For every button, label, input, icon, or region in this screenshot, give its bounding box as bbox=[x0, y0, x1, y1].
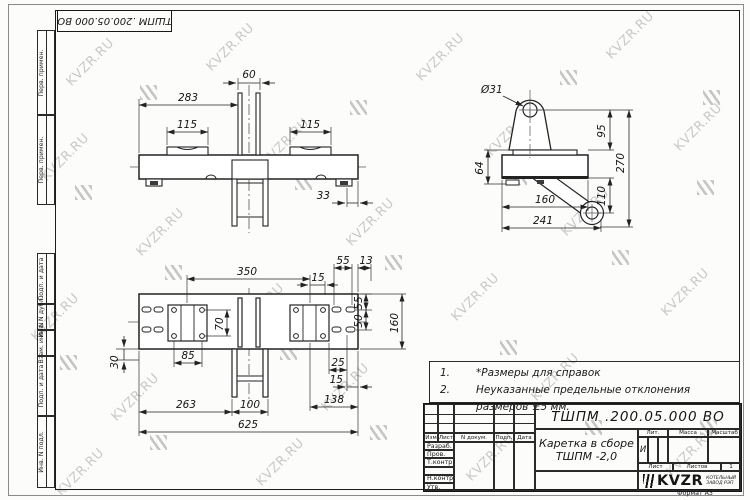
tb-podp-column bbox=[494, 442, 514, 491]
kvzr-logo-text: KVZR bbox=[657, 473, 703, 489]
tb-spare-cell bbox=[494, 404, 514, 433]
dim-label-110: 110 bbox=[596, 186, 608, 206]
notes-block: 1. *Размеры для справок 2. Неуказанные п… bbox=[429, 361, 740, 403]
title-block: Изм Лист N докум. Подп. Дата Разраб. Про… bbox=[423, 403, 742, 492]
tb-col-izm: Изм bbox=[424, 433, 438, 442]
tb-row-blank bbox=[424, 467, 454, 475]
drawing-sheet: KVZR.RUKVZR.RUKVZR.RUKVZR.RUKVZR.RUKVZR.… bbox=[0, 0, 750, 500]
dim-label-138: 138 bbox=[324, 394, 344, 406]
tb-masshtab-label: Масштаб bbox=[708, 429, 741, 437]
dim-label-55r: 55 bbox=[353, 296, 365, 310]
tb-spare-cell bbox=[438, 404, 454, 433]
tb-spare-divider bbox=[424, 423, 535, 424]
margin-box-perv-primen-1: Перв. примен. bbox=[37, 30, 55, 115]
margin-box-perv-primen-2: Перв. примен. bbox=[37, 115, 55, 205]
dim-label-70: 70 bbox=[214, 317, 226, 331]
tb-massa-value bbox=[668, 437, 708, 463]
dim-label-350: 350 bbox=[237, 266, 257, 278]
dim-label-55t: 55 bbox=[336, 255, 350, 267]
tb-massa-label: Масса bbox=[668, 429, 708, 437]
dim-label-dia31: Ø31 bbox=[480, 84, 503, 96]
margin-box-podp-data-2: Подп. и дата bbox=[37, 356, 55, 416]
dim-label-13: 13 bbox=[359, 255, 372, 267]
dim-label-115r: 115 bbox=[300, 119, 320, 131]
dim-label-15b: 15 bbox=[330, 374, 344, 386]
tb-data-column bbox=[514, 442, 535, 491]
dim-label-160plan: 160 bbox=[389, 313, 401, 333]
tb-row-tkontr: Т.контр. bbox=[424, 458, 454, 466]
tb-spare-cell bbox=[424, 404, 438, 433]
tb-doc-number: ТШПМ .200.05.000 ВО bbox=[535, 404, 741, 429]
tb-listov-value: 1 bbox=[721, 463, 741, 471]
tb-docum-column bbox=[454, 442, 494, 491]
tb-part-name-line2: ТШПМ -2,0 bbox=[556, 450, 617, 463]
tb-spare-divider bbox=[424, 414, 535, 415]
tb-logo-cell: KVZR КОТЕЛЬНЫЙ ЗАВОД РЭП bbox=[638, 471, 741, 491]
dim-label-263: 263 bbox=[176, 399, 196, 411]
plan-view: 350 15 55 13 55 50 160 70 85 30 25 15 26… bbox=[109, 255, 406, 436]
kvzr-logo-subtext: КОТЕЛЬНЫЙ ЗАВОД РЭП bbox=[706, 476, 736, 486]
dim-label-95: 95 bbox=[596, 124, 608, 138]
tb-listov-label: Листов bbox=[673, 463, 721, 471]
tb-list-label: Лист bbox=[638, 463, 673, 471]
front-view: 60 283 115 115 33 bbox=[130, 69, 373, 233]
dim-label-270: 270 bbox=[615, 153, 627, 173]
dim-label-115l: 115 bbox=[177, 119, 197, 131]
tb-row-nkontr: Н.контр. bbox=[424, 475, 454, 483]
dim-label-160side: 160 bbox=[535, 194, 555, 206]
dim-label-60: 60 bbox=[242, 69, 256, 81]
tb-col-podp: Подп. bbox=[494, 433, 514, 442]
tb-col-docum: N докум. bbox=[454, 433, 494, 442]
dim-label-25: 25 bbox=[331, 357, 345, 369]
tb-part-name-line1: Каретка в сборе bbox=[539, 437, 634, 450]
tb-material-cell bbox=[535, 471, 638, 491]
tb-lit-value: И bbox=[638, 437, 648, 463]
dim-label-33: 33 bbox=[317, 190, 330, 202]
tb-spare-cell bbox=[514, 404, 535, 433]
format-label: Формат А3 bbox=[640, 490, 750, 497]
doc-number-stamp: ТШПМ .200.05.000 ВО bbox=[57, 10, 172, 32]
kvzr-logo-icon bbox=[643, 474, 654, 488]
tb-part-name: Каретка в сборе ТШПМ -2,0 bbox=[535, 429, 638, 471]
dim-label-64: 64 bbox=[474, 161, 486, 174]
margin-box-vzam-inv: Взам. инв. N bbox=[37, 330, 55, 356]
dim-label-15t: 15 bbox=[311, 272, 325, 284]
dim-label-283: 283 bbox=[178, 92, 198, 104]
tb-row-prov: Пров. bbox=[424, 450, 454, 458]
dim-label-100: 100 bbox=[240, 399, 260, 411]
dim-label-50r: 50 bbox=[353, 314, 365, 328]
side-view: Ø31 95 270 110 64 160 241 bbox=[474, 84, 633, 232]
tb-lit-label: Лит. bbox=[638, 429, 668, 437]
dim-label-30: 30 bbox=[109, 355, 121, 369]
note-1: 1. *Размеры для справок bbox=[440, 365, 739, 382]
dim-label-241: 241 bbox=[533, 215, 553, 227]
tb-col-data: Дата bbox=[514, 433, 535, 442]
doc-number-stamp-text: ТШПМ .200.05.000 ВО bbox=[57, 16, 171, 27]
tb-col-list: Лист bbox=[438, 433, 454, 442]
tb-row-utv: Утв. bbox=[424, 483, 454, 491]
tb-lit-cell3 bbox=[658, 437, 668, 463]
tb-row-razrab: Разраб. bbox=[424, 442, 454, 450]
tb-spare-cell bbox=[454, 404, 494, 433]
margin-box-inv-podl: Инв. N подл. bbox=[37, 416, 55, 488]
tb-lit-cell2 bbox=[648, 437, 658, 463]
tb-masshtab-value bbox=[708, 437, 741, 463]
dim-label-625: 625 bbox=[238, 419, 258, 431]
dim-label-85: 85 bbox=[181, 350, 195, 362]
